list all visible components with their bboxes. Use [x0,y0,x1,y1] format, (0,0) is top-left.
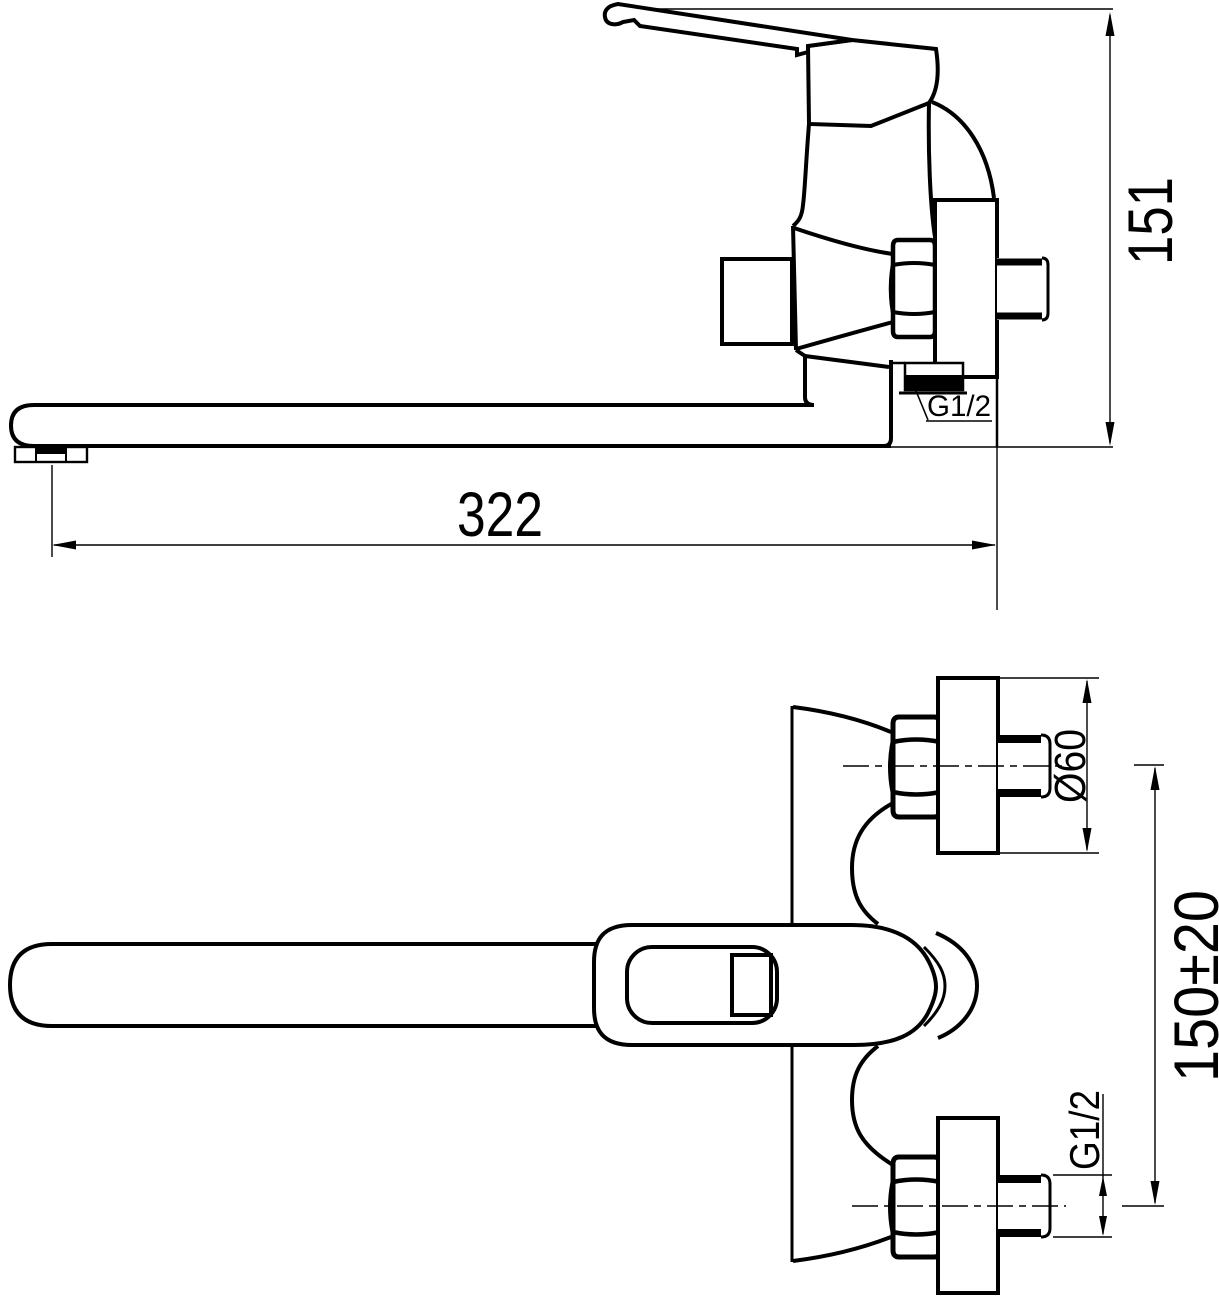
dim-length-label: 322 [457,480,543,550]
drawing-sheet: 151 322 G1/2 [0,0,1219,1300]
hex-nut-side [891,240,937,337]
dim-height-label: 151 [1116,177,1186,265]
outlet-nub-side [722,259,792,344]
wall-flange-side [935,200,997,377]
paper-background [0,0,1219,1300]
dim-flange-label: Ø60 [1046,729,1095,803]
thread-label-side-text: G1/2 [927,390,991,423]
upper-hex-nut [893,717,940,817]
dim-port-spacing-label: 150±20 [1162,890,1219,1082]
lever-end [732,955,771,1015]
hex-nut-outline [893,240,935,337]
supply-nipple-side [997,258,1048,320]
thread-label-front-text: G1/2 [1061,1090,1108,1170]
aerator-screen [36,447,66,454]
lower-hex-nut [893,1157,940,1257]
supply-nipple-fill [997,258,1048,320]
faucet-technical-drawing: 151 322 G1/2 [0,0,1219,1300]
thread-nipple-side [899,363,967,393]
